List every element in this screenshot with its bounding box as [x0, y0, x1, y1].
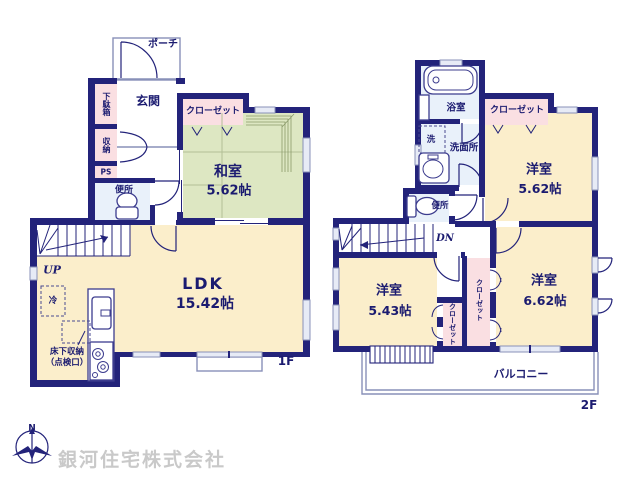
- shutter-window: [370, 346, 433, 363]
- room-size-western-se: 6.62帖: [523, 295, 566, 308]
- stairs-up-label: UP: [43, 265, 61, 276]
- room-label-porch: ポーチ: [148, 40, 178, 50]
- room-size-japanese-room: 5.62帖: [206, 185, 251, 198]
- floor1-room-fills: [37, 84, 303, 380]
- floorplan-drawing: [0, 0, 640, 480]
- toilet1f-icon: [116, 193, 138, 219]
- floorplan-canvas: ポーチ 玄関 下駄箱 収納 PS 便所 クローゼット 和室 5.62帖 LDK …: [0, 0, 640, 480]
- underfloor-storage-label: 床下収納: [50, 348, 84, 357]
- room-label-toilet-2f: 便所: [431, 202, 448, 211]
- room-label-washroom: 洗面所: [450, 143, 479, 153]
- room-label-bathroom: 浴室: [446, 103, 465, 113]
- room-size-ldk: 15.42帖: [176, 297, 234, 311]
- room-label-western-ne: 洋室: [526, 164, 552, 177]
- bathtub-icon: [424, 66, 477, 94]
- room-label-western-sw: 洋室: [376, 285, 402, 298]
- stairs2f-area: [339, 224, 433, 252]
- room-label-storage: 収納: [102, 137, 110, 153]
- company-watermark: 銀河住宅株式会社: [58, 451, 226, 470]
- room-label-western-se: 洋室: [531, 275, 557, 288]
- room-label-closet-east: クローゼット: [476, 279, 483, 321]
- casement-window-lower: [598, 299, 612, 313]
- room-label-ldk: LDK: [182, 276, 224, 292]
- terrace-step-outline: [197, 357, 262, 371]
- room-label-closet-2f-north: クローゼット: [490, 107, 544, 116]
- toilet2f-door: [452, 195, 477, 220]
- room-size-western-ne: 5.62帖: [518, 183, 561, 196]
- stove-icon: [90, 342, 113, 380]
- room-label-japanese-room: 和室: [214, 165, 242, 179]
- washbasin-icon: [419, 153, 449, 183]
- washer-label: 洗: [427, 136, 436, 145]
- room-label-toilet-1f: 便所: [115, 187, 133, 196]
- stairs1f-area: [37, 225, 130, 256]
- kitchen-counter-icon: [88, 289, 114, 381]
- balcony-label: バルコニー: [494, 369, 549, 380]
- compass-north-letter: N: [28, 425, 36, 434]
- room-label-closet-1f: クローゼット: [186, 108, 240, 117]
- bath-counter-icon: [419, 95, 429, 120]
- casement-window-upper: [598, 258, 612, 272]
- room-size-western-sw: 5.43帖: [368, 305, 411, 318]
- floor2-label: 2F: [581, 399, 598, 411]
- refrigerator-label: 冷: [49, 297, 58, 306]
- inspection-hatch-label: （点検口）: [46, 359, 89, 368]
- floor1-label: 1F: [278, 355, 295, 367]
- room-label-closet-west: クローゼット: [449, 303, 456, 345]
- room-label-entrance: 玄関: [136, 95, 160, 107]
- room-label-shoe-cabinet: 下駄箱: [102, 92, 110, 116]
- stairs-down-label: DN: [436, 234, 454, 244]
- room-label-pipe-shaft: PS: [101, 168, 112, 176]
- toilet1f-door: [155, 181, 179, 205]
- western-room-sw-door: [434, 256, 459, 281]
